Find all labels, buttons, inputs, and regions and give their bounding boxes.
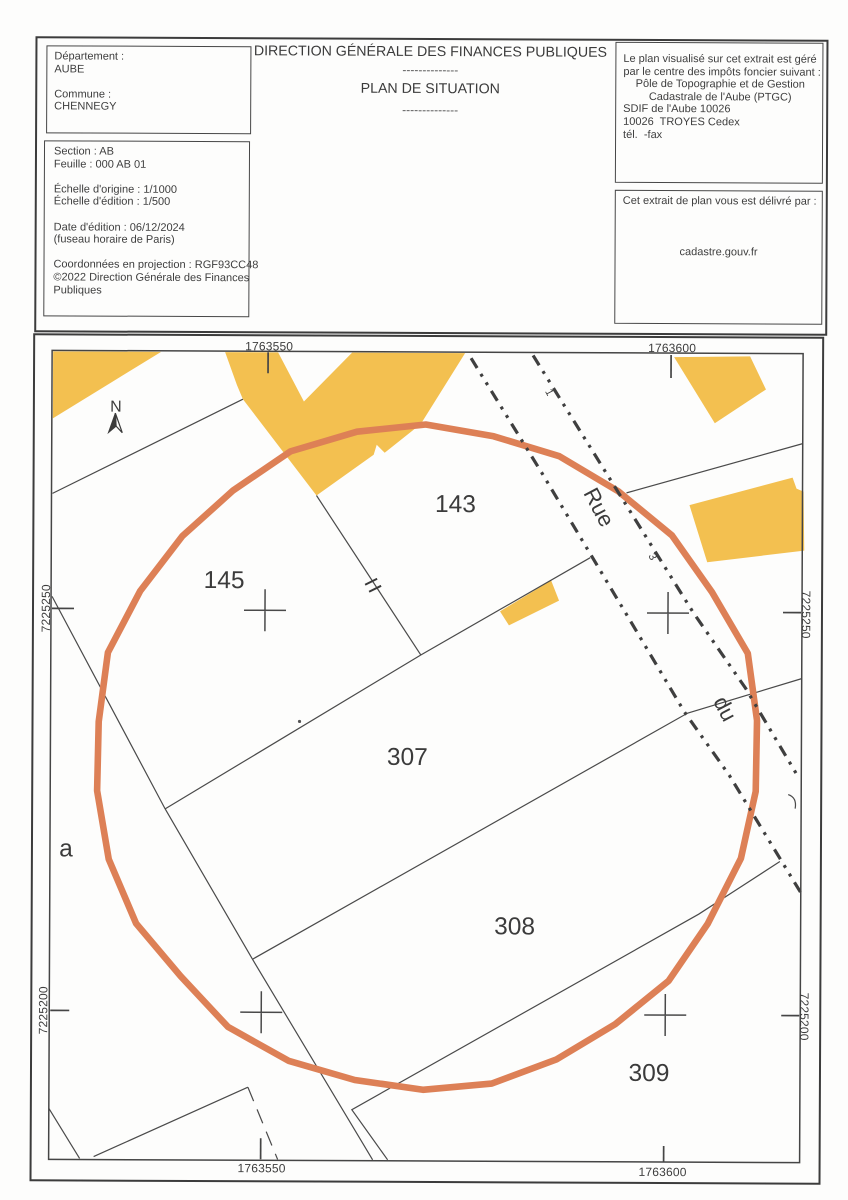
svg-text:143: 143 [435,491,476,518]
svg-text:a: a [59,835,73,862]
svg-text:307: 307 [387,744,428,771]
svg-text:1763600: 1763600 [648,341,696,355]
svg-text:7225200: 7225200 [36,986,50,1034]
svg-text:7225200: 7225200 [797,993,811,1041]
svg-text:7225250: 7225250 [39,584,53,632]
svg-text:1763550: 1763550 [237,1161,285,1175]
svg-text:3: 3 [645,551,658,562]
svg-text:1763600: 1763600 [638,1165,686,1179]
svg-text:145: 145 [204,567,245,594]
svg-text:1763550: 1763550 [245,339,293,353]
svg-text:7225250: 7225250 [799,591,813,639]
svg-text:1: 1 [542,387,555,398]
svg-text:309: 309 [628,1060,669,1087]
svg-text:308: 308 [494,913,535,940]
svg-text:du: du [708,692,742,725]
